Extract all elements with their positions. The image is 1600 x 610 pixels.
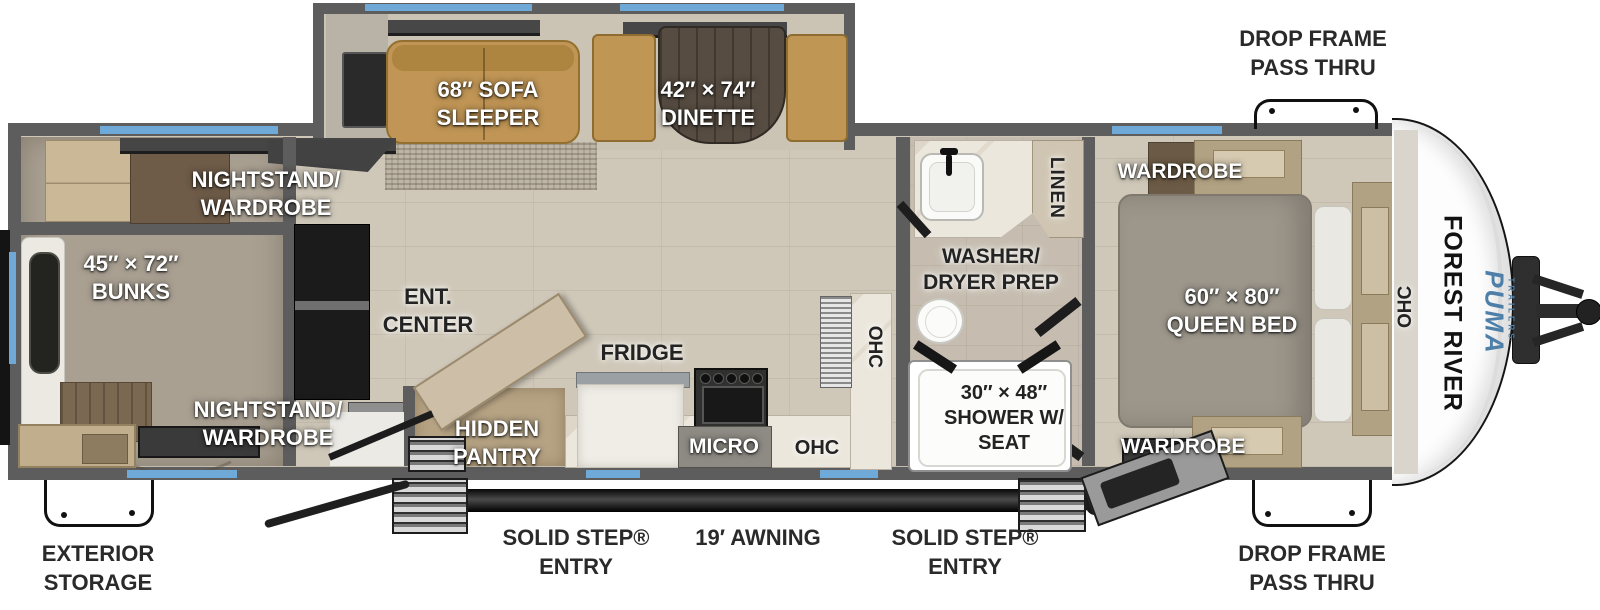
window-bottom-kitchen bbox=[586, 470, 640, 478]
window-bottom-rear bbox=[127, 470, 237, 478]
ohc-kitchen-vertical-label: OHC bbox=[862, 317, 886, 377]
rear-window bbox=[9, 252, 16, 364]
latch-dot bbox=[1265, 511, 1271, 517]
queen-bed-label: 60″ × 80″ QUEEN BED bbox=[1132, 283, 1332, 338]
solid-step-right-label: SOLID STEP® ENTRY bbox=[875, 524, 1055, 581]
stove bbox=[694, 368, 768, 428]
sofa-label: 68″ SOFA SLEEPER bbox=[388, 76, 588, 131]
wardrobe-bottom-label: WARDROBE bbox=[1108, 434, 1258, 460]
toilet bbox=[916, 298, 964, 344]
kitchen-ohc-cabinet bbox=[820, 296, 852, 388]
sink-basin bbox=[929, 162, 975, 212]
rear-bottom-nightstand bbox=[18, 424, 136, 468]
awning-bar bbox=[402, 489, 1092, 512]
floorplan-canvas: 68″ SOFA SLEEPER 42″ × 74″ DINETTE NIGHT… bbox=[0, 0, 1600, 610]
latch-dot bbox=[1349, 510, 1355, 516]
hidden-pantry-label: HIDDEN PANTRY bbox=[412, 415, 582, 470]
slideout-window-left bbox=[365, 4, 532, 11]
latch-dot bbox=[1269, 108, 1275, 114]
cabinet-panel-upper bbox=[1361, 207, 1389, 295]
burner-2 bbox=[713, 373, 724, 384]
washer-dryer-label: WASHER/ DRYER PREP bbox=[906, 244, 1076, 297]
window-top-bedroom bbox=[1112, 126, 1222, 134]
pass-thru-bottom-label: DROP FRAME PASS THRU bbox=[1222, 540, 1402, 597]
dinette-label: 42″ × 74″ DINETTE bbox=[608, 76, 808, 131]
tv bbox=[342, 52, 388, 128]
latch-dot bbox=[129, 510, 135, 516]
slide-topper-left bbox=[377, 20, 540, 36]
wardrobe-top-label: WARDROBE bbox=[1105, 159, 1255, 185]
linen-label: LINEN bbox=[1044, 157, 1068, 217]
faucet-stem bbox=[946, 154, 952, 176]
exterior-storage-compartment bbox=[44, 480, 154, 527]
fridge bbox=[577, 384, 684, 468]
burner-1 bbox=[700, 373, 711, 384]
awning-label: 19′ AWNING bbox=[668, 524, 848, 553]
burner-3 bbox=[726, 373, 737, 384]
step-strut-left bbox=[264, 479, 410, 528]
fridge-label: FRIDGE bbox=[582, 339, 702, 367]
exterior-storage-label: EXTERIOR STORAGE bbox=[16, 540, 180, 597]
oven-window bbox=[702, 386, 764, 424]
window-bottom-bath bbox=[820, 470, 878, 478]
solid-step-left-label: SOLID STEP® ENTRY bbox=[486, 524, 666, 581]
bunks-label: 45″ × 72″ BUNKS bbox=[41, 250, 221, 305]
manufacturer-logo: FOREST RIVER bbox=[1438, 194, 1467, 434]
living-rug bbox=[385, 142, 597, 190]
bath-sink bbox=[920, 153, 984, 221]
cabinet-panel-lower bbox=[1361, 323, 1389, 411]
ent-center-label: ENT. CENTER bbox=[358, 283, 498, 338]
nightstand-wardrobe-bottom-label: NIGHTSTAND/ WARDROBE bbox=[168, 396, 368, 451]
model-series-label: TRAILERS bbox=[1507, 275, 1516, 345]
latch-dot bbox=[61, 512, 67, 518]
latch-dot bbox=[1353, 107, 1359, 113]
slideout-window-right bbox=[620, 4, 784, 11]
burner-5 bbox=[752, 373, 763, 384]
micro-label: MICRO bbox=[678, 434, 770, 460]
pass-thru-compartment-top bbox=[1254, 99, 1378, 129]
pass-thru-compartment-bottom bbox=[1252, 480, 1372, 527]
toilet-seat bbox=[925, 306, 957, 338]
rear-cabinet-light bbox=[45, 140, 132, 222]
hitch-coupler bbox=[1576, 299, 1600, 325]
burner-4 bbox=[739, 373, 750, 384]
ohc-kitchen-label: OHC bbox=[787, 436, 847, 461]
door-window bbox=[1099, 457, 1180, 509]
nightstand-opening bbox=[82, 434, 128, 464]
shower-label: 30″ × 48″ SHOWER W/ SEAT bbox=[929, 381, 1079, 456]
ohc-bedroom-label: OHC bbox=[1394, 277, 1418, 337]
pass-thru-top-label: DROP FRAME PASS THRU bbox=[1223, 25, 1403, 82]
nightstand-wardrobe-top-label: NIGHTSTAND/ WARDROBE bbox=[166, 166, 366, 221]
window-top-rear bbox=[100, 126, 278, 134]
model-logo: PUMA bbox=[1479, 253, 1510, 373]
